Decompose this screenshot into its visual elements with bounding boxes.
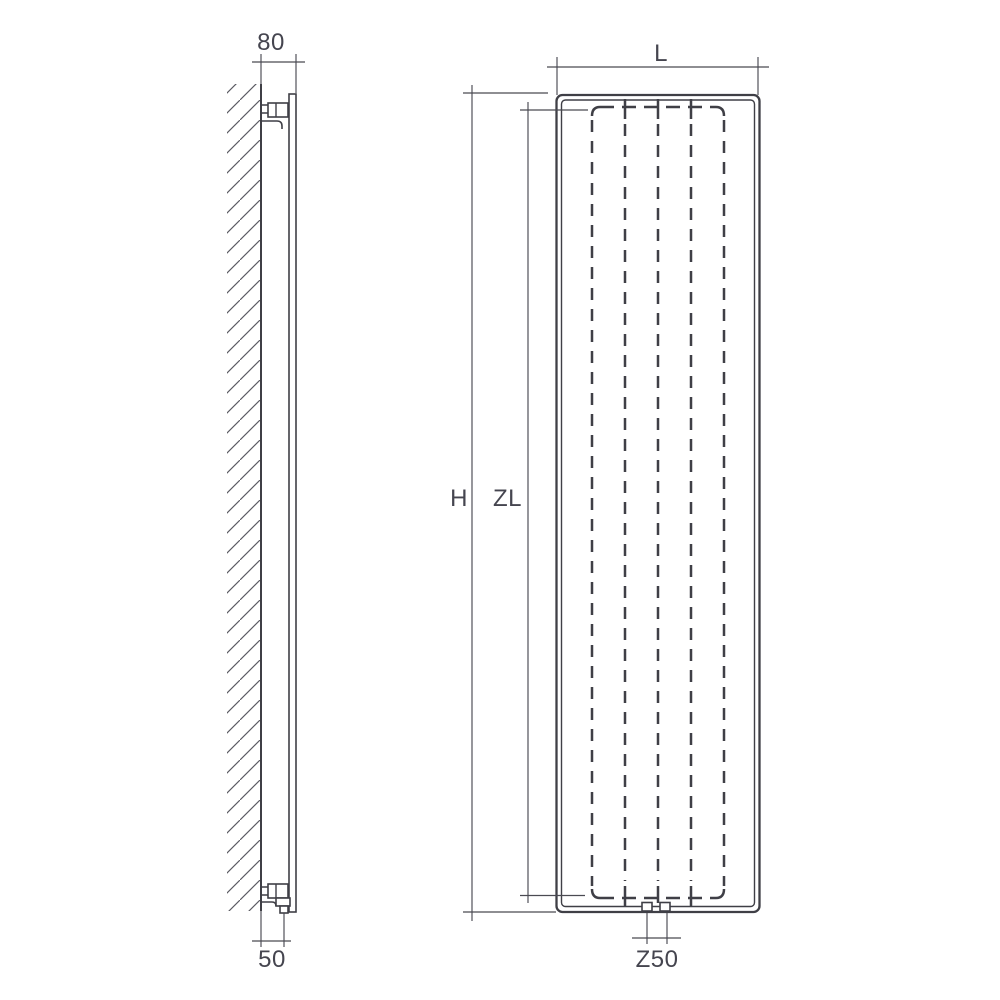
side-view <box>227 84 296 913</box>
dimension-label-width: L <box>637 42 685 66</box>
panel-foot-tab <box>280 906 288 913</box>
pipe-connection-left <box>642 903 652 912</box>
front-view <box>557 95 760 912</box>
radiator-panel-profile <box>289 94 296 912</box>
dimension-Z50-connection-spacing <box>632 913 681 944</box>
pipe-connection-right <box>660 903 670 912</box>
dimension-label-connection-spacing: Z50 <box>628 948 686 972</box>
wall-hatching <box>227 84 261 911</box>
panel-foot <box>276 898 290 906</box>
wall-bracket-top <box>261 103 288 129</box>
wall-bracket-bottom <box>261 884 290 913</box>
dimension-label-bottom-depth: 50 <box>248 948 296 972</box>
dimension-label-top-depth: 80 <box>247 31 295 55</box>
dimension-label-height: H <box>430 487 468 511</box>
dimension-label-connection-length: ZL <box>478 487 522 511</box>
technical-drawing-canvas: 80 50 L H ZL Z50 <box>0 0 1000 1000</box>
dimension-50-bottom-depth <box>252 911 291 947</box>
